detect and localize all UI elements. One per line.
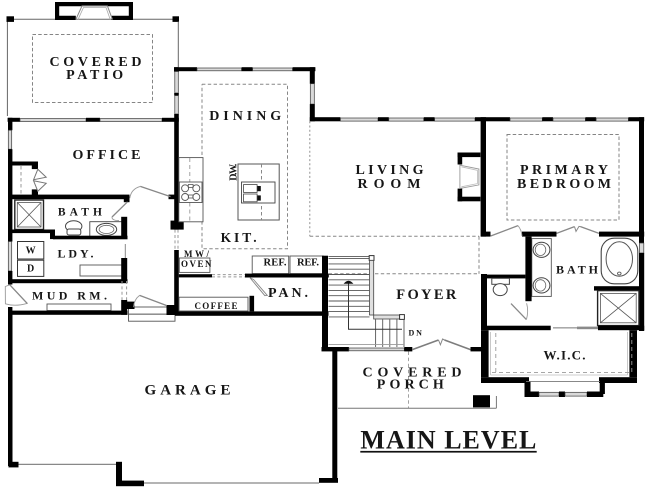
- svg-text:REF.: REF.: [264, 258, 287, 269]
- svg-text:OVEN: OVEN: [181, 259, 212, 269]
- svg-text:REF.: REF.: [297, 258, 319, 269]
- svg-text:DN: DN: [408, 329, 422, 338]
- svg-text:COFFEE: COFFEE: [195, 301, 238, 311]
- svg-text:OFFICE: OFFICE: [73, 148, 141, 163]
- svg-text:BATH: BATH: [556, 263, 599, 277]
- svg-text:BEDROOM: BEDROOM: [517, 177, 611, 192]
- svg-text:W: W: [26, 246, 36, 257]
- svg-text:D.W.: D.W.: [228, 163, 239, 181]
- svg-text:MAIN LEVEL: MAIN LEVEL: [360, 426, 536, 455]
- svg-text:MW/: MW/: [184, 249, 209, 259]
- svg-text:W.I.C.: W.I.C.: [544, 348, 586, 363]
- svg-text:D: D: [27, 264, 34, 275]
